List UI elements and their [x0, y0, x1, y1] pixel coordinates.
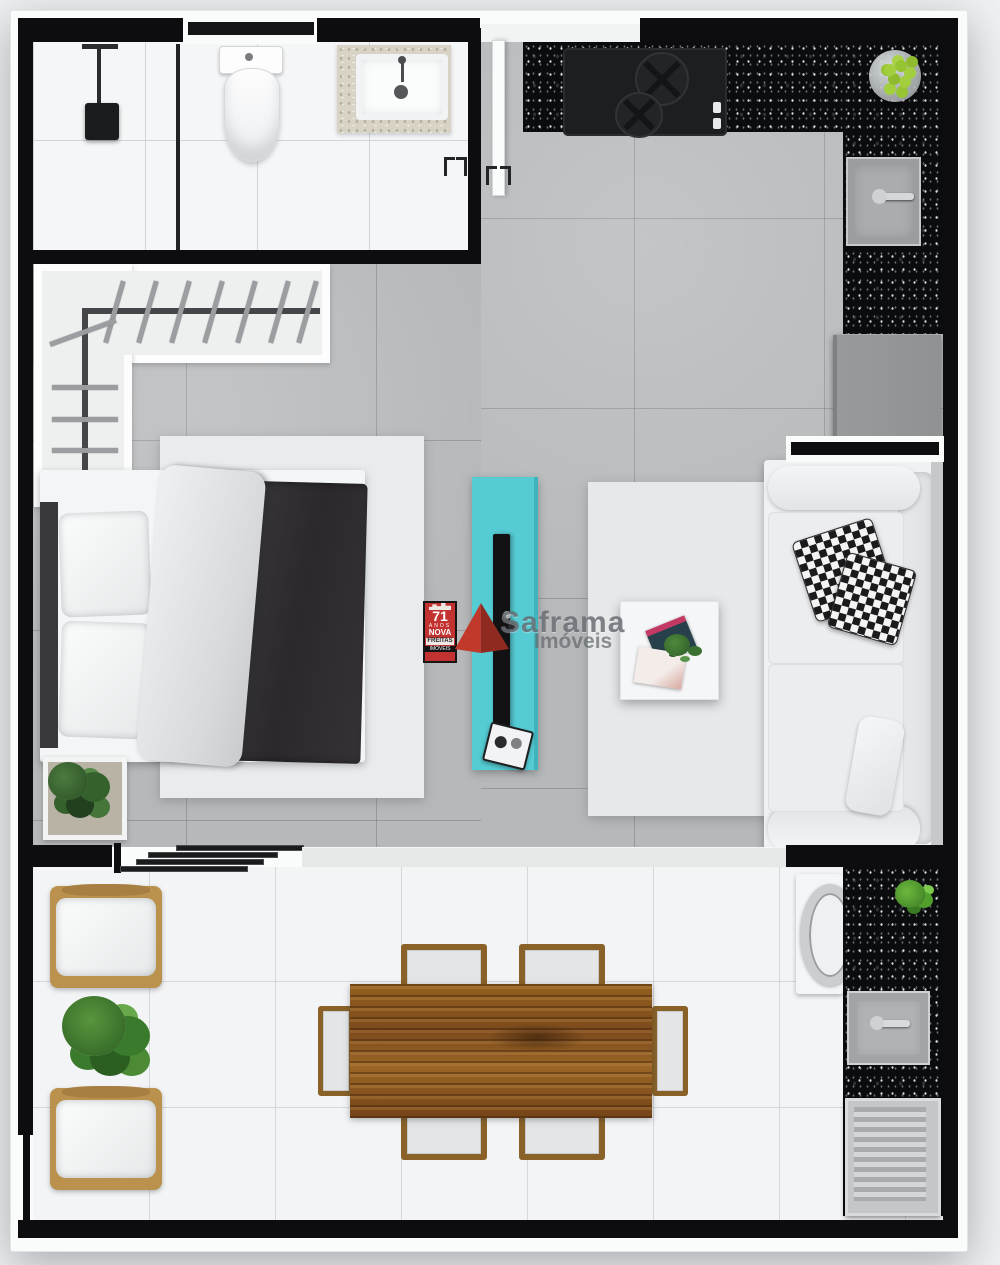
watermark-badge: 71 ANOS NOVA FREITAS IMÓVEIS — [423, 601, 457, 663]
bathroom-window-glass — [188, 22, 314, 35]
sliding-door-panel-4 — [120, 866, 248, 872]
cooktop-knob — [713, 118, 721, 129]
floor-plan-image: 71 ANOS NOVA FREITAS IMÓVEIS Saframa Imó… — [0, 0, 1000, 1265]
wall-living-balcony-right — [798, 845, 943, 867]
wall-top-left — [18, 18, 185, 42]
badge-years: 71 — [432, 610, 448, 623]
basin-faucet-stem — [401, 62, 404, 82]
shower-glass-partition — [176, 44, 180, 250]
living-balcony-threshold — [302, 847, 786, 867]
dining-chair-left — [318, 1006, 354, 1096]
wall-bedroom-balcony — [28, 845, 112, 867]
kitchen-faucet-base — [872, 189, 887, 204]
wall-left — [18, 18, 33, 864]
sofa-armrest-top — [768, 466, 920, 510]
wall-top-right — [640, 18, 958, 42]
entry-door-handle-2 — [500, 166, 511, 185]
bathroom-door-handle-2 — [456, 157, 467, 176]
wall-bottom — [18, 1220, 958, 1238]
hanger — [52, 385, 118, 390]
shower-head — [85, 103, 119, 140]
sliding-door-panel-2 — [148, 852, 278, 858]
watermark-brand-sub: Imóveis — [534, 630, 612, 654]
balcony-plant — [62, 996, 126, 1056]
console-knob — [493, 735, 508, 750]
closet-rail-horizontal — [86, 308, 320, 314]
dining-chair-right — [652, 1006, 688, 1096]
drying-rack — [845, 1098, 941, 1216]
hanger — [52, 417, 118, 422]
wall-top-mid — [317, 18, 480, 42]
wall-bathroom-right — [468, 28, 481, 262]
toilet-bowl — [224, 68, 280, 162]
dining-table — [350, 984, 652, 1118]
shower-arm-pipe — [97, 44, 101, 108]
badge-imoveis: IMÓVEIS — [425, 646, 455, 652]
basin-drain — [394, 85, 408, 99]
cooktop-knob — [713, 102, 721, 113]
sliding-door-panel — [176, 845, 304, 851]
console-knob-2 — [510, 737, 523, 750]
sofa-wall-window — [791, 442, 939, 455]
burner-icon — [615, 92, 663, 138]
wall-right — [943, 18, 958, 1238]
wall-bathroom-bottom — [33, 250, 481, 264]
limes — [884, 64, 896, 76]
wall-balcony-left-thin — [23, 1135, 30, 1225]
service-plant — [895, 880, 925, 908]
badge-skyline-icon — [429, 603, 451, 610]
living-balcony-bracket — [786, 845, 798, 867]
bedroom-plant — [48, 762, 88, 800]
window-sill-behind-sofa — [931, 455, 943, 855]
toilet-flush-button — [245, 53, 253, 61]
armchair-cushion-2 — [56, 1100, 156, 1178]
bed-pillow — [58, 510, 152, 617]
wall-balcony-left — [18, 845, 33, 1135]
laundry-sink — [847, 991, 930, 1065]
badge-nova: NOVA — [429, 629, 452, 637]
fruit-bowl — [869, 50, 921, 102]
bed-headboard — [40, 502, 58, 748]
laundry-faucet-base — [870, 1016, 884, 1030]
drying-rack-ribs — [854, 1107, 926, 1201]
sliding-door-panel-3 — [136, 859, 264, 865]
entry-doorway — [481, 24, 641, 42]
armchair-cushion — [56, 898, 156, 976]
cooktop — [563, 48, 727, 136]
bathroom-door-handle — [444, 157, 455, 176]
armchair-wood-lip — [62, 884, 150, 896]
entry-door-handle — [486, 166, 497, 185]
hanger — [52, 448, 118, 453]
coffee-table-plant — [664, 634, 690, 656]
armchair-wood-lip-2 — [62, 1086, 150, 1098]
badge-freitas: FREITAS — [426, 638, 453, 645]
refrigerator — [833, 335, 941, 441]
